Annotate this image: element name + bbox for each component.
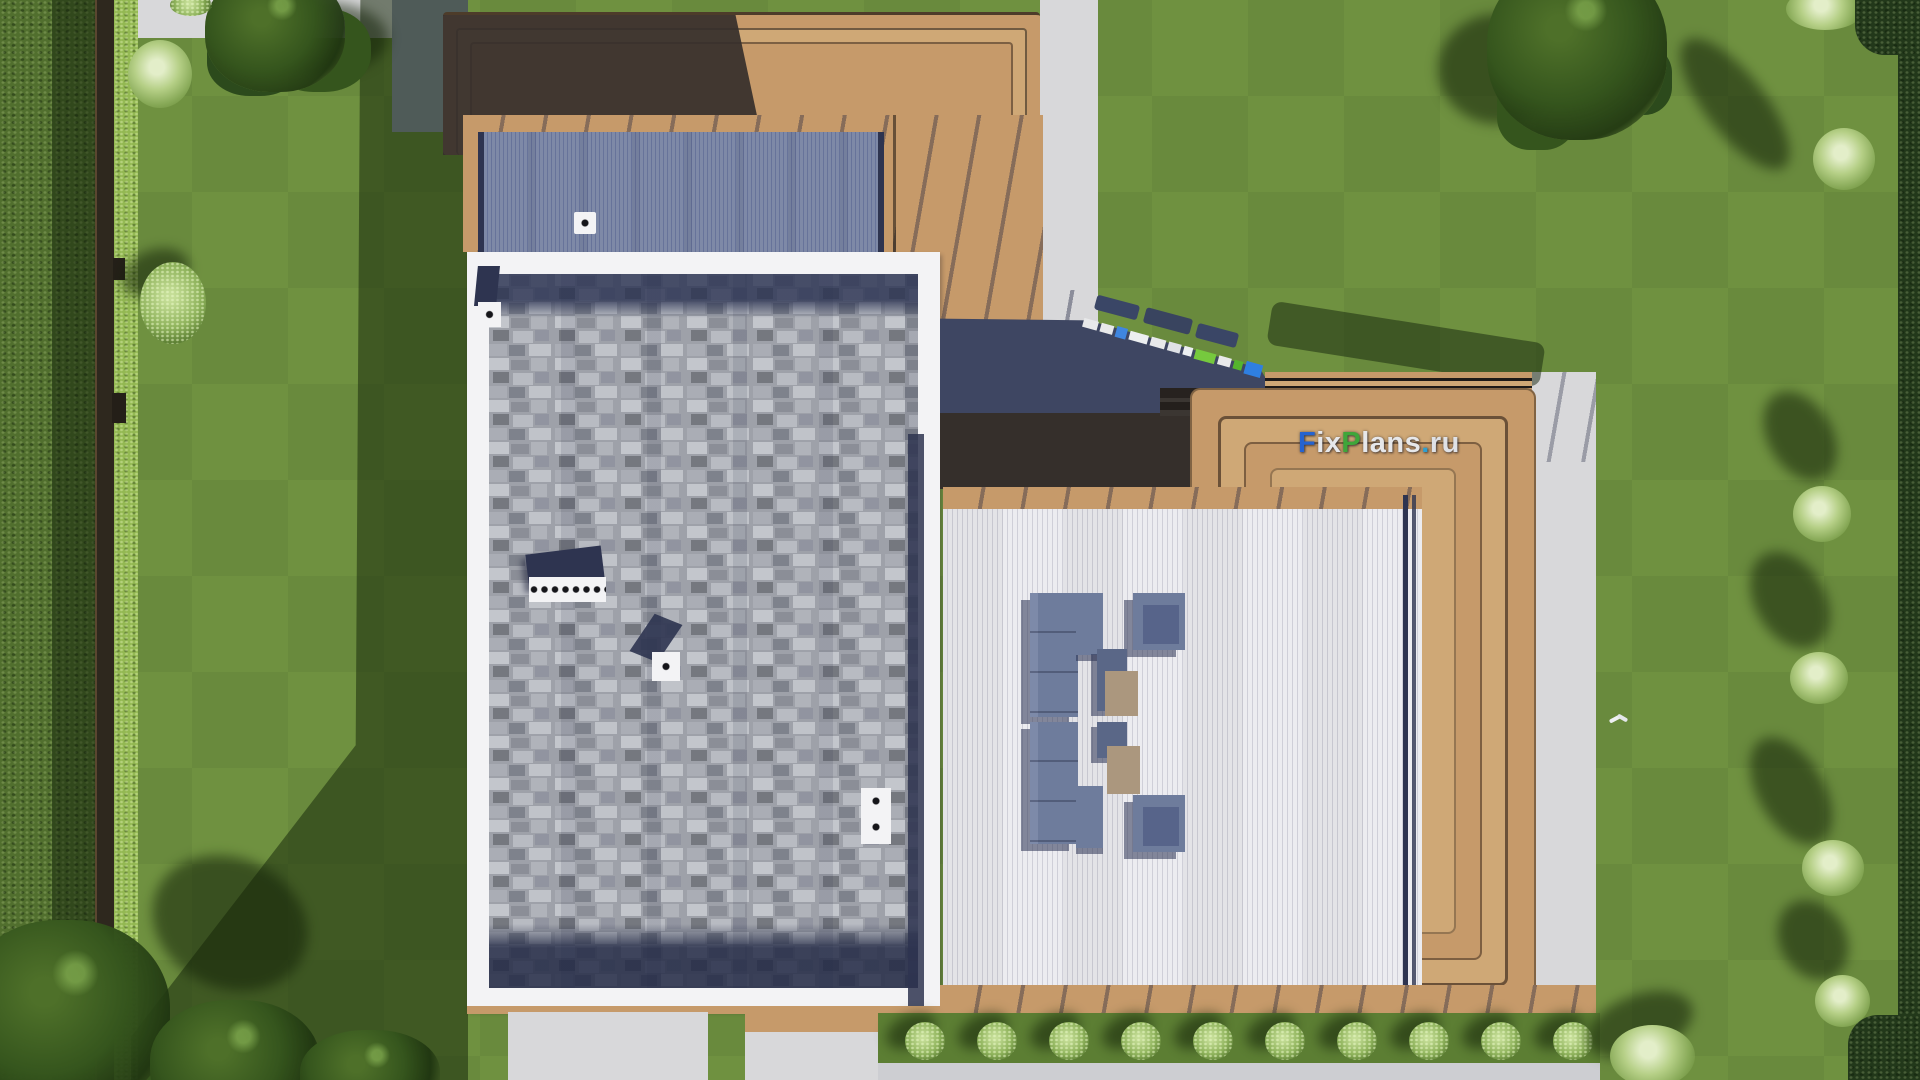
bush: [977, 1022, 1017, 1060]
sofa-left-lower-chaise: [1076, 786, 1103, 848]
garage-corrugated-roof: [478, 132, 884, 252]
terrace: [943, 487, 1422, 1010]
left-hedge-shadow: [52, 0, 95, 1080]
railing-item: [1217, 355, 1232, 367]
watermark-part: P: [1341, 427, 1361, 459]
bush: [1337, 1022, 1377, 1060]
right-hedge-strip: [1898, 0, 1920, 1080]
light-bush-right: [1813, 128, 1875, 190]
railing-item: [1115, 326, 1129, 340]
railing-item: [1128, 331, 1149, 345]
terrace-top-wood-band: [943, 487, 1422, 509]
bottom-pad-left: [508, 1012, 708, 1080]
bush: [1193, 1022, 1233, 1060]
terrace-railing: [1412, 495, 1416, 1002]
coffee-table-lower: [1107, 746, 1140, 794]
armchair-seat: [1143, 807, 1179, 846]
bush: [905, 1022, 945, 1060]
sofa-left-lower: [1030, 722, 1078, 844]
coffee-table-upper: [1105, 671, 1138, 716]
bush: [1121, 1022, 1161, 1060]
bright-hedge-strip: [114, 0, 138, 1080]
bush: [1049, 1022, 1089, 1060]
watermark-part: ix: [1316, 427, 1341, 459]
east-walk-strip: [1532, 372, 1596, 1080]
shingle-roof: [489, 274, 918, 988]
bush-mid-left: [140, 262, 206, 344]
sofa-left-upper: [1030, 593, 1078, 717]
bottom-right-bush: [1610, 1025, 1695, 1080]
bush: [1481, 1022, 1521, 1060]
right-hedge-corner: [1848, 1015, 1920, 1080]
armchair-upper: [1133, 593, 1185, 650]
light-bush-top-left: [128, 40, 192, 108]
bottom-pad-mid: [745, 1012, 878, 1080]
bird: [1609, 711, 1629, 727]
watermark-part: .: [1421, 427, 1430, 459]
hedge-post: [112, 393, 126, 423]
right-bush: [1802, 840, 1864, 896]
railing-item: [1099, 323, 1114, 335]
railing-item: [1182, 346, 1193, 357]
parapet-inner-shadow: [908, 434, 924, 1010]
bush: [1265, 1022, 1305, 1060]
right-bush: [1790, 652, 1848, 704]
railing-item: [1150, 337, 1167, 350]
watermark: FixPlans.ru: [1298, 427, 1460, 460]
railing-item: [1232, 360, 1243, 371]
low-vent: [861, 788, 891, 844]
garage-roof-vent: [574, 212, 596, 234]
bottom-concrete-strip: [878, 1063, 1600, 1080]
corner-vent-shadow: [474, 266, 500, 306]
watermark-part: lans: [1361, 427, 1421, 459]
armchair-lower: [1133, 795, 1185, 852]
watermark-part: ru: [1430, 427, 1460, 459]
terrace-decking: [943, 509, 1422, 987]
armchair-seat: [1143, 605, 1179, 644]
right-bush: [1793, 486, 1851, 542]
aerial-house-render: FixPlans.ru: [0, 0, 1920, 1080]
watermark-part: F: [1298, 427, 1316, 459]
east-walk-shadow-ticks: [1532, 372, 1596, 462]
railing-item: [1082, 318, 1099, 331]
bottom-walkway: [940, 985, 1596, 1015]
skylight-vent-strip: [529, 577, 606, 602]
sofa-left-upper-chaise: [1076, 593, 1103, 655]
right-hedge-corner: [1855, 0, 1920, 55]
shingle-shading: [489, 274, 918, 988]
railing-item: [1167, 341, 1182, 353]
terrace-railing: [1403, 495, 1408, 1002]
bird-wing: [1617, 714, 1629, 723]
corner-vent: [478, 302, 501, 327]
bush: [1409, 1022, 1449, 1060]
mid-vent: [652, 652, 680, 681]
fence-line: [95, 0, 116, 1080]
